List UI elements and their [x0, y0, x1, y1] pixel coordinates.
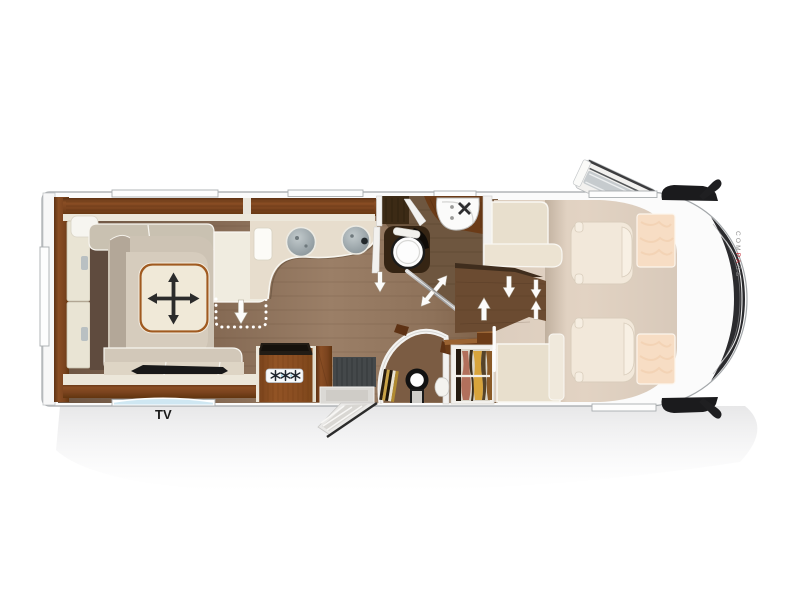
- svg-text:TV: TV: [155, 407, 172, 422]
- svg-text:COMPASS: COMPASS: [734, 231, 741, 278]
